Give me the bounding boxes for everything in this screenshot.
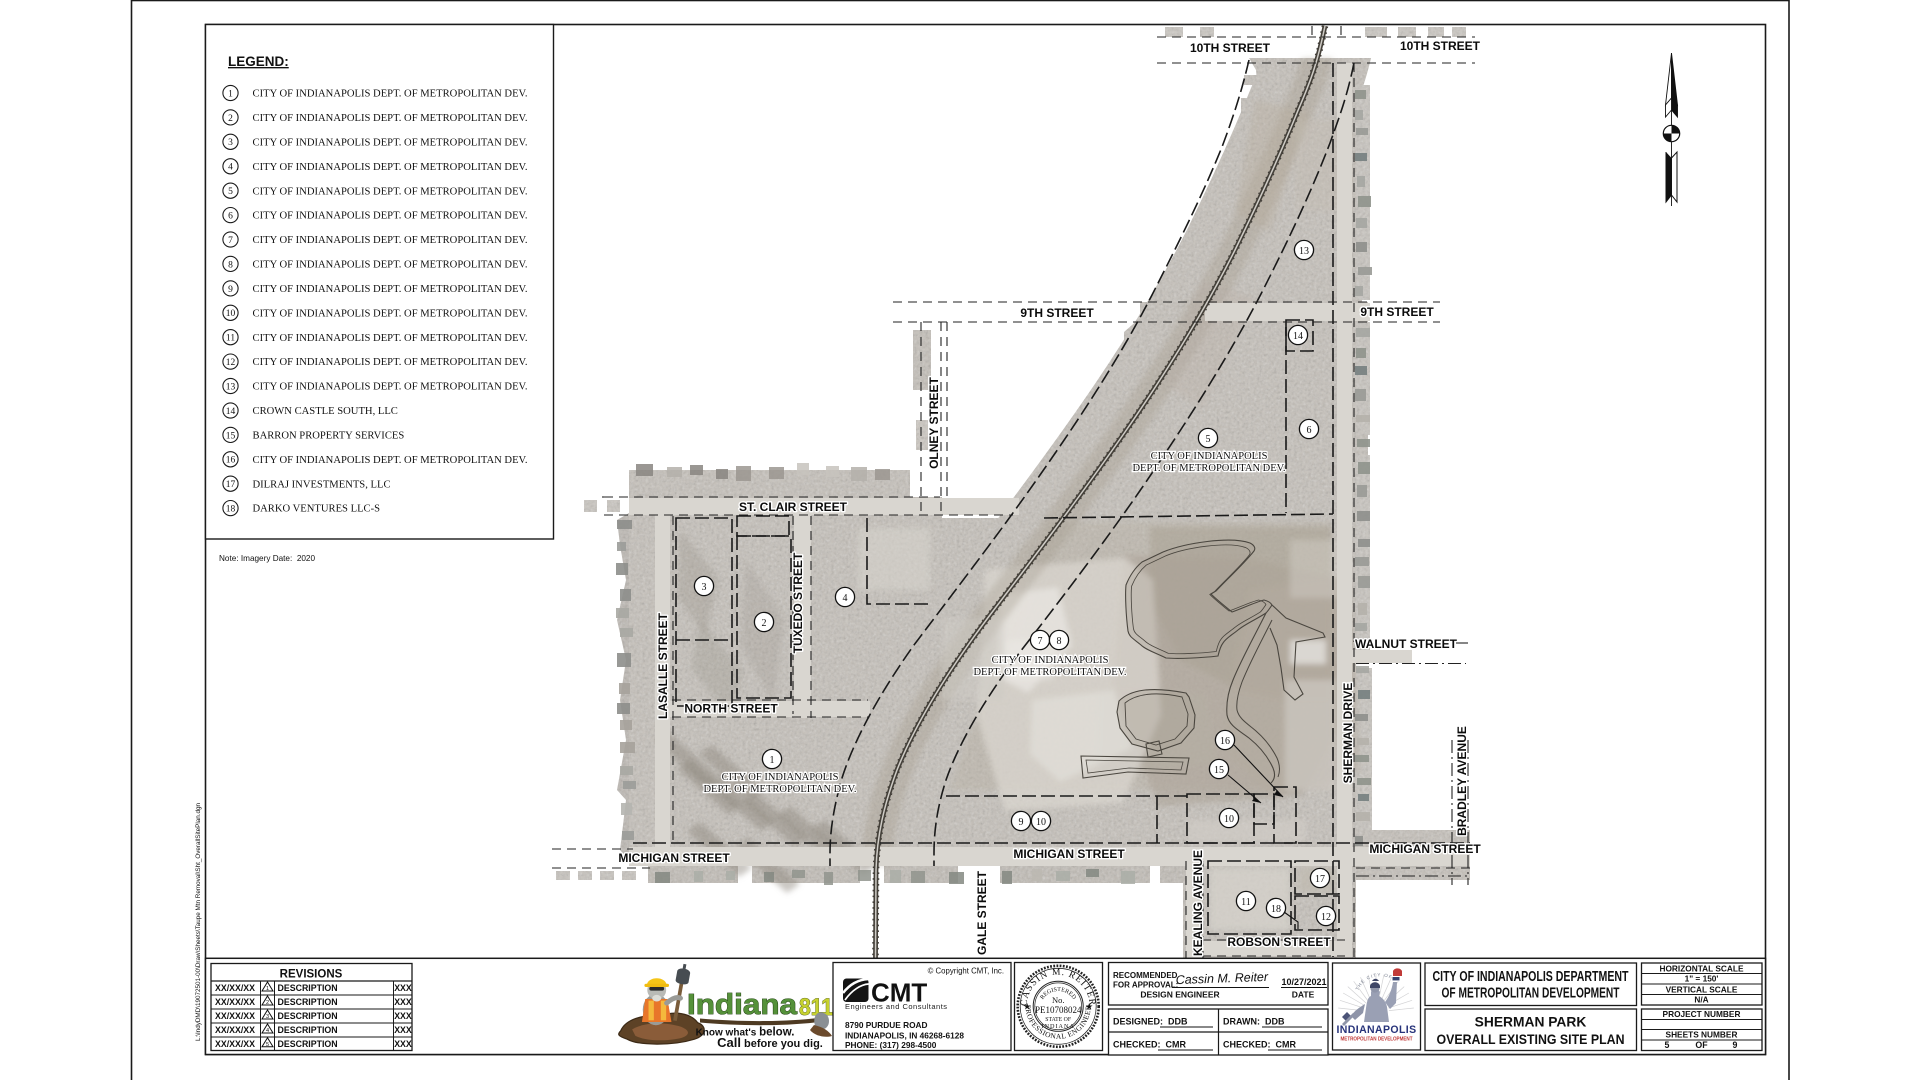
svg-text:10TH STREET: 10TH STREET bbox=[1190, 41, 1271, 55]
svg-text:CITY OF INDIANAPOLIS DEPT. OF: CITY OF INDIANAPOLIS DEPT. OF METROPOLIT… bbox=[253, 260, 528, 271]
svg-text:CITY OF INDIANAPOLIS DEPT. OF: CITY OF INDIANAPOLIS DEPT. OF METROPOLIT… bbox=[253, 308, 528, 319]
svg-text:CITY OF INDIANAPOLIS DEPT. OF: CITY OF INDIANAPOLIS DEPT. OF METROPOLIT… bbox=[253, 382, 528, 393]
svg-text:1: 1 bbox=[266, 986, 269, 992]
svg-text:17: 17 bbox=[1315, 874, 1325, 885]
svg-text:DESIGNED: DDB: DESIGNED: DDB bbox=[1113, 1017, 1188, 1027]
svg-text:1: 1 bbox=[770, 755, 775, 766]
svg-text:10/27/2021: 10/27/2021 bbox=[1281, 977, 1326, 987]
svg-text:10: 10 bbox=[1036, 817, 1046, 828]
svg-text:4: 4 bbox=[228, 163, 233, 173]
svg-text:14: 14 bbox=[1293, 331, 1303, 342]
svg-text:CITY OF INDIANAPOLIS DEPT. OF: CITY OF INDIANAPOLIS DEPT. OF METROPOLIT… bbox=[253, 113, 528, 124]
svg-text:KEALING AVENUE: KEALING AVENUE bbox=[1191, 850, 1205, 956]
svg-text:5: 5 bbox=[1665, 1040, 1670, 1050]
svg-text:2: 2 bbox=[762, 618, 767, 629]
svg-text:CITY OF INDIANAPOLIS: CITY OF INDIANAPOLIS bbox=[1151, 451, 1268, 462]
svg-text:LASALLE STREET: LASALLE STREET bbox=[656, 612, 670, 719]
svg-text:BARRON PROPERTY SERVICES: BARRON PROPERTY SERVICES bbox=[253, 431, 405, 442]
svg-text:Know what's below.: Know what's below. bbox=[696, 1027, 795, 1039]
svg-text:11: 11 bbox=[226, 334, 235, 344]
svg-text:9: 9 bbox=[1019, 817, 1024, 828]
svg-text:6: 6 bbox=[228, 212, 233, 222]
svg-text:N/A: N/A bbox=[1694, 995, 1708, 1005]
svg-text:CITY OF INDIANAPOLIS DEPT. OF: CITY OF INDIANAPOLIS DEPT. OF METROPOLIT… bbox=[253, 89, 528, 100]
svg-text:4: 4 bbox=[843, 593, 848, 604]
svg-text:No.: No. bbox=[1052, 995, 1065, 1005]
svg-text:11: 11 bbox=[1241, 897, 1251, 908]
svg-text:18: 18 bbox=[1271, 904, 1281, 915]
svg-text:5: 5 bbox=[228, 187, 233, 197]
svg-text:10: 10 bbox=[226, 309, 236, 319]
svg-text:PE10708024: PE10708024 bbox=[1035, 1005, 1082, 1015]
svg-text:13: 13 bbox=[1299, 246, 1309, 257]
svg-text:TUXEDO STREET: TUXEDO STREET bbox=[791, 552, 805, 653]
svg-text:Call before you dig.: Call before you dig. bbox=[717, 1035, 823, 1050]
svg-text:METROPOLITAN DEVELOPMENT: METROPOLITAN DEVELOPMENT bbox=[1341, 1037, 1414, 1043]
svg-text:CROWN CASTLE SOUTH, LLC: CROWN CASTLE SOUTH, LLC bbox=[253, 406, 398, 417]
svg-text:9: 9 bbox=[1733, 1040, 1738, 1050]
svg-text:SHERMAN DRIVE: SHERMAN DRIVE bbox=[1341, 683, 1355, 784]
svg-text:7: 7 bbox=[228, 236, 233, 246]
svg-text:FOR APPROVAL:: FOR APPROVAL: bbox=[1113, 981, 1178, 990]
svg-text:BRADLEY AVENUE: BRADLEY AVENUE bbox=[1455, 726, 1469, 836]
svg-text:WALNUT STREET: WALNUT STREET bbox=[1355, 637, 1458, 651]
svg-text:10TH STREET: 10TH STREET bbox=[1400, 39, 1481, 53]
svg-text:SHEETS NUMBER: SHEETS NUMBER bbox=[1666, 1030, 1738, 1040]
svg-text:DESCRIPTION: DESCRIPTION bbox=[278, 997, 338, 1007]
svg-text:XX/XX/XX: XX/XX/XX bbox=[215, 997, 255, 1007]
svg-text:MICHIGAN STREET: MICHIGAN STREET bbox=[1369, 842, 1481, 856]
svg-text:L:\IndyDMD\19072501-00\Draw\Sh: L:\IndyDMD\19072501-00\Draw\Sheets\Taupe… bbox=[195, 802, 202, 1041]
svg-text:LEGEND:: LEGEND: bbox=[228, 54, 289, 69]
svg-text:CHECKED: CMR: CHECKED: CMR bbox=[1223, 1040, 1296, 1050]
svg-text:DARKO VENTURES LLC-S: DARKO VENTURES LLC-S bbox=[253, 504, 381, 515]
svg-text:INDIANAPOLIS: INDIANAPOLIS bbox=[1337, 1024, 1417, 1036]
svg-text:1" = 150': 1" = 150' bbox=[1685, 974, 1719, 984]
svg-text:5: 5 bbox=[266, 1042, 269, 1048]
svg-text:DATE: DATE bbox=[1292, 990, 1315, 1000]
svg-text:SHERMAN PARK: SHERMAN PARK bbox=[1475, 1015, 1587, 1030]
svg-text:★: ★ bbox=[1023, 1001, 1031, 1011]
svg-text:CITY OF INDIANAPOLIS DEPT. OF: CITY OF INDIANAPOLIS DEPT. OF METROPOLIT… bbox=[253, 235, 528, 246]
svg-text:STATE OF: STATE OF bbox=[1045, 1017, 1072, 1023]
svg-text:CITY OF INDIANAPOLIS DEPARTMEN: CITY OF INDIANAPOLIS DEPARTMENT bbox=[1433, 969, 1629, 985]
svg-text:VERTICAL SCALE: VERTICAL SCALE bbox=[1666, 985, 1738, 995]
svg-text:XXX: XXX bbox=[394, 997, 412, 1007]
svg-text:HORIZONTAL SCALE: HORIZONTAL SCALE bbox=[1659, 964, 1744, 974]
svg-text:XX/XX/XX: XX/XX/XX bbox=[215, 1039, 255, 1049]
svg-text:10: 10 bbox=[1224, 814, 1234, 825]
svg-text:DILRAJ INVESTMENTS, LLC: DILRAJ INVESTMENTS, LLC bbox=[253, 479, 391, 490]
svg-text:XX/XX/XX: XX/XX/XX bbox=[215, 983, 255, 993]
svg-text:16: 16 bbox=[1220, 736, 1230, 747]
svg-text:CITY OF INDIANAPOLIS DEPT. OF: CITY OF INDIANAPOLIS DEPT. OF METROPOLIT… bbox=[253, 162, 528, 173]
svg-text:PROJECT NUMBER: PROJECT NUMBER bbox=[1663, 1009, 1741, 1019]
svg-text:MICHIGAN STREET: MICHIGAN STREET bbox=[1013, 847, 1125, 861]
svg-text:OF METROPOLITAN DEVELOPMENT: OF METROPOLITAN DEVELOPMENT bbox=[1442, 986, 1620, 1002]
svg-text:PHONE: (317) 298-4500: PHONE: (317) 298-4500 bbox=[845, 1040, 937, 1050]
svg-text:CITY OF INDIANAPOLIS DEPT. OF: CITY OF INDIANAPOLIS DEPT. OF METROPOLIT… bbox=[253, 284, 528, 295]
svg-text:9TH STREET: 9TH STREET bbox=[1020, 306, 1094, 320]
svg-text:CITY OF INDIANAPOLIS DEPT. OF: CITY OF INDIANAPOLIS DEPT. OF METROPOLIT… bbox=[253, 455, 528, 466]
svg-text:MICHIGAN STREET: MICHIGAN STREET bbox=[618, 851, 730, 865]
svg-text:OF: OF bbox=[1695, 1040, 1708, 1050]
svg-text:XXX: XXX bbox=[394, 1025, 412, 1035]
svg-text:2: 2 bbox=[266, 1000, 269, 1006]
svg-text:12: 12 bbox=[226, 358, 236, 368]
svg-text:XXX: XXX bbox=[394, 1039, 412, 1049]
svg-text:CITY OF INDIANAPOLIS DEPT. OF: CITY OF INDIANAPOLIS DEPT. OF METROPOLIT… bbox=[253, 357, 528, 368]
svg-text:17: 17 bbox=[226, 480, 236, 490]
svg-text:CITY OF INDIANAPOLIS DEPT. OF: CITY OF INDIANAPOLIS DEPT. OF METROPOLIT… bbox=[253, 186, 528, 197]
svg-text:12: 12 bbox=[1321, 912, 1331, 923]
svg-text:CITY OF INDIANAPOLIS DEPT. OF: CITY OF INDIANAPOLIS DEPT. OF METROPOLIT… bbox=[253, 137, 528, 148]
svg-text:ROBSON STREET: ROBSON STREET bbox=[1227, 935, 1331, 949]
svg-text:CITY OF INDIANAPOLIS DEPT. OF: CITY OF INDIANAPOLIS DEPT. OF METROPOLIT… bbox=[253, 333, 528, 344]
svg-text:13: 13 bbox=[226, 382, 236, 392]
svg-text:7: 7 bbox=[1038, 636, 1043, 647]
svg-text:1: 1 bbox=[228, 89, 233, 99]
svg-text:CITY OF INDIANAPOLIS: CITY OF INDIANAPOLIS bbox=[992, 655, 1109, 666]
svg-text:DESIGN ENGINEER: DESIGN ENGINEER bbox=[1140, 990, 1219, 1000]
svg-text:NORTH STREET: NORTH STREET bbox=[684, 702, 778, 716]
svg-text:RECOMMENDED: RECOMMENDED bbox=[1113, 971, 1178, 980]
svg-text:REVISIONS: REVISIONS bbox=[280, 969, 343, 981]
svg-text:DESCRIPTION: DESCRIPTION bbox=[278, 1025, 338, 1035]
svg-text:Engineers and Consultants: Engineers and Consultants bbox=[845, 1002, 948, 1011]
svg-text:INDIANA: INDIANA bbox=[1041, 1023, 1074, 1030]
svg-text:DEPT. OF METROPOLITAN DEV.: DEPT. OF METROPOLITAN DEV. bbox=[1132, 463, 1285, 474]
svg-text:GALE STREET: GALE STREET bbox=[975, 870, 989, 955]
svg-text:OLNEY STREET: OLNEY STREET bbox=[927, 376, 941, 468]
svg-text:4: 4 bbox=[266, 1028, 269, 1034]
svg-text:CHECKED: CMR: CHECKED: CMR bbox=[1113, 1040, 1186, 1050]
svg-text:14: 14 bbox=[226, 407, 236, 417]
svg-text:INDIANAPOLIS, IN 46268-6128: INDIANAPOLIS, IN 46268-6128 bbox=[845, 1031, 964, 1041]
svg-text:CITY OF INDIANAPOLIS DEPT. OF: CITY OF INDIANAPOLIS DEPT. OF METROPOLIT… bbox=[253, 211, 528, 222]
svg-text:9TH STREET: 9TH STREET bbox=[1360, 305, 1434, 319]
svg-text:15: 15 bbox=[1214, 765, 1224, 776]
svg-text:5: 5 bbox=[1206, 434, 1211, 445]
svg-text:★: ★ bbox=[1085, 1001, 1093, 1011]
svg-text:2: 2 bbox=[228, 114, 233, 124]
svg-text:OVERALL EXISTING SITE PLAN: OVERALL EXISTING SITE PLAN bbox=[1437, 1032, 1625, 1047]
svg-text:3: 3 bbox=[266, 1014, 269, 1020]
svg-text:8790 PURDUE ROAD: 8790 PURDUE ROAD bbox=[845, 1020, 928, 1030]
svg-text:DEPT. OF METROPOLITAN DEV.: DEPT. OF METROPOLITAN DEV. bbox=[973, 667, 1126, 678]
svg-text:ST. CLAIR STREET: ST. CLAIR STREET bbox=[739, 500, 848, 514]
svg-text:3: 3 bbox=[228, 138, 233, 148]
svg-text:3: 3 bbox=[702, 582, 707, 593]
svg-text:CITY OF INDIANAPOLIS: CITY OF INDIANAPOLIS bbox=[722, 772, 839, 783]
svg-text:15: 15 bbox=[226, 431, 236, 441]
svg-text:8: 8 bbox=[228, 260, 233, 270]
svg-text:Note: Imagery Date: 2020: Note: Imagery Date: 2020 bbox=[219, 554, 315, 563]
svg-text:DESCRIPTION: DESCRIPTION bbox=[278, 1039, 338, 1049]
svg-text:DEPT. OF METROPOLITAN DEV.: DEPT. OF METROPOLITAN DEV. bbox=[703, 784, 856, 795]
svg-text:8: 8 bbox=[1057, 636, 1062, 647]
svg-text:6: 6 bbox=[1307, 425, 1312, 436]
svg-text:© Copyright CMT, Inc.: © Copyright CMT, Inc. bbox=[928, 967, 1004, 976]
svg-text:18: 18 bbox=[226, 505, 236, 515]
svg-text:9: 9 bbox=[228, 285, 233, 295]
svg-text:XXX: XXX bbox=[394, 1011, 412, 1021]
svg-text:XX/XX/XX: XX/XX/XX bbox=[215, 1025, 255, 1035]
svg-text:DESCRIPTION: DESCRIPTION bbox=[278, 983, 338, 993]
svg-text:16: 16 bbox=[226, 456, 236, 466]
svg-text:XX/XX/XX: XX/XX/XX bbox=[215, 1011, 255, 1021]
svg-text:DESCRIPTION: DESCRIPTION bbox=[278, 1011, 338, 1021]
svg-text:XXX: XXX bbox=[394, 983, 412, 993]
svg-text:Indiana: Indiana bbox=[687, 989, 798, 1021]
svg-text:DRAWN: DDB: DRAWN: DDB bbox=[1223, 1017, 1285, 1027]
